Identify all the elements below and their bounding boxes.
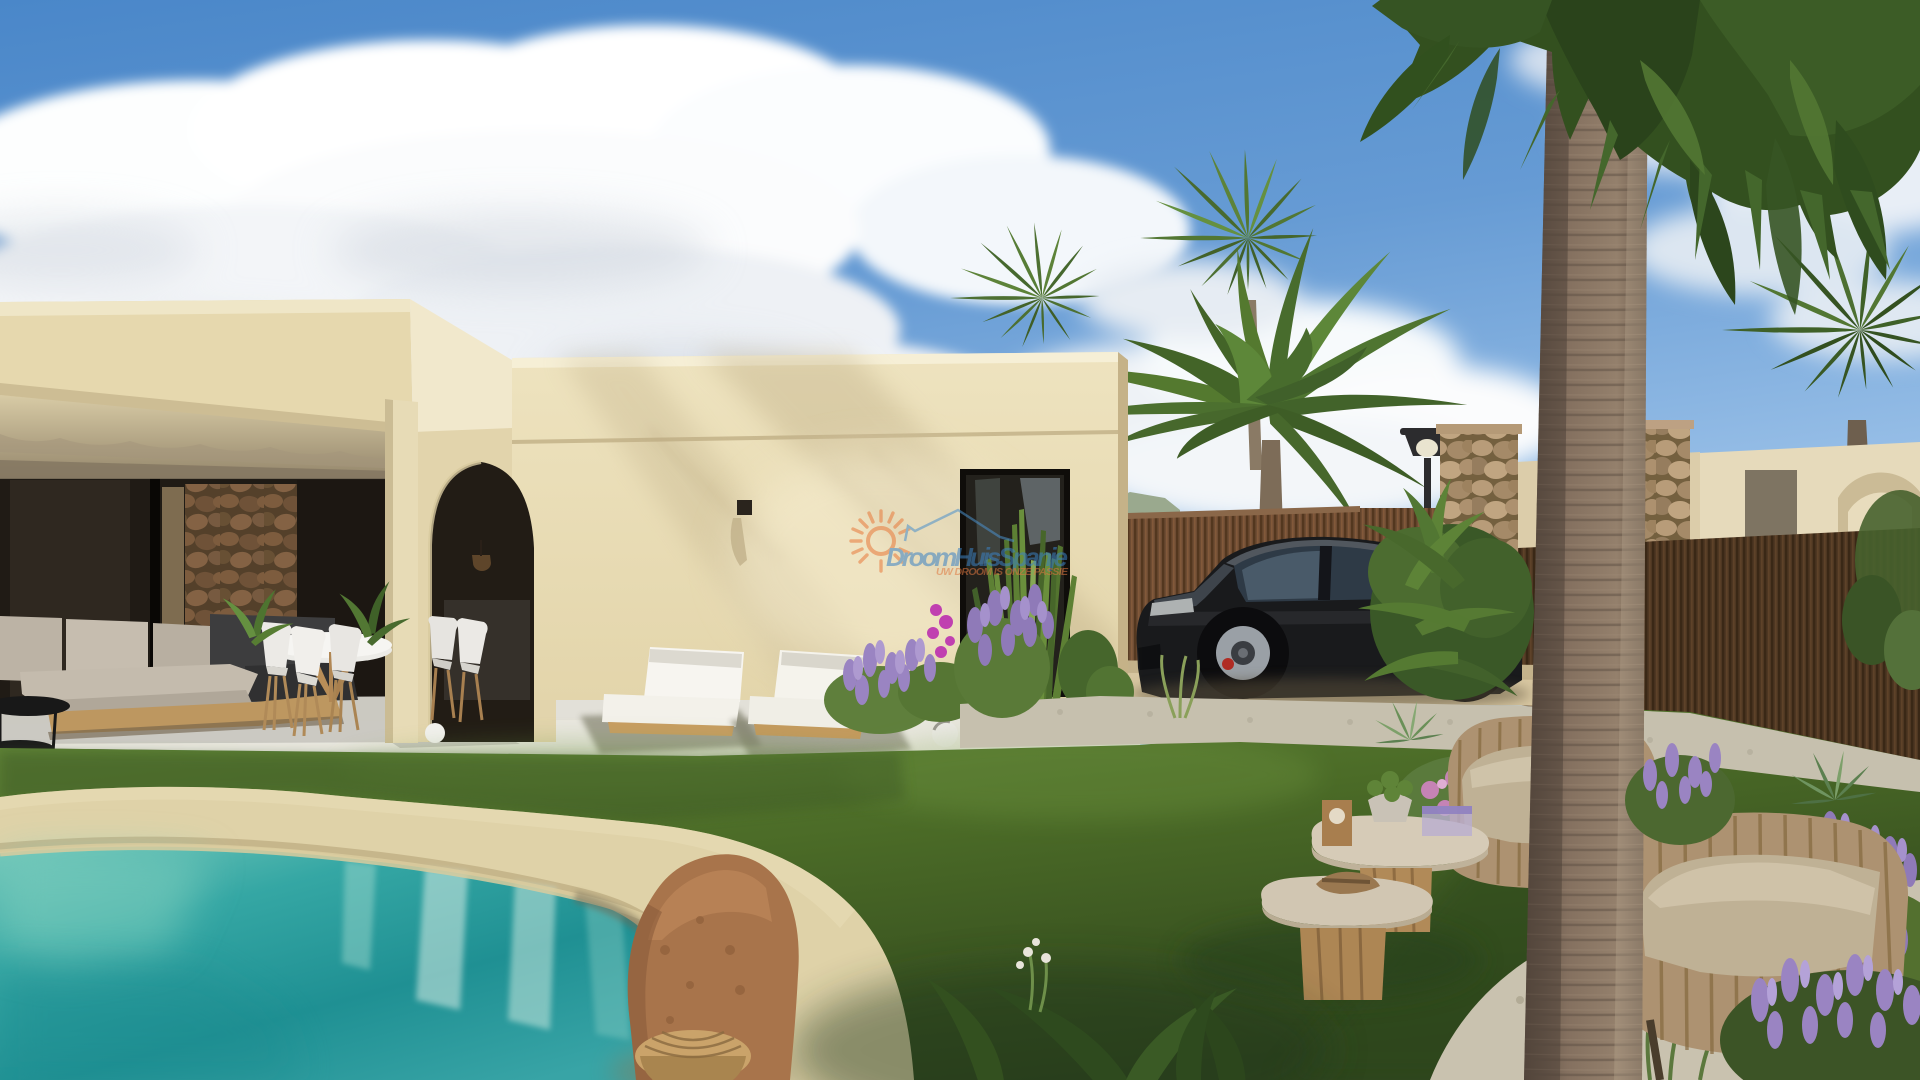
svg-text:UW DROOM IS ONZE PASSIE: UW DROOM IS ONZE PASSIE [936,566,1069,578]
